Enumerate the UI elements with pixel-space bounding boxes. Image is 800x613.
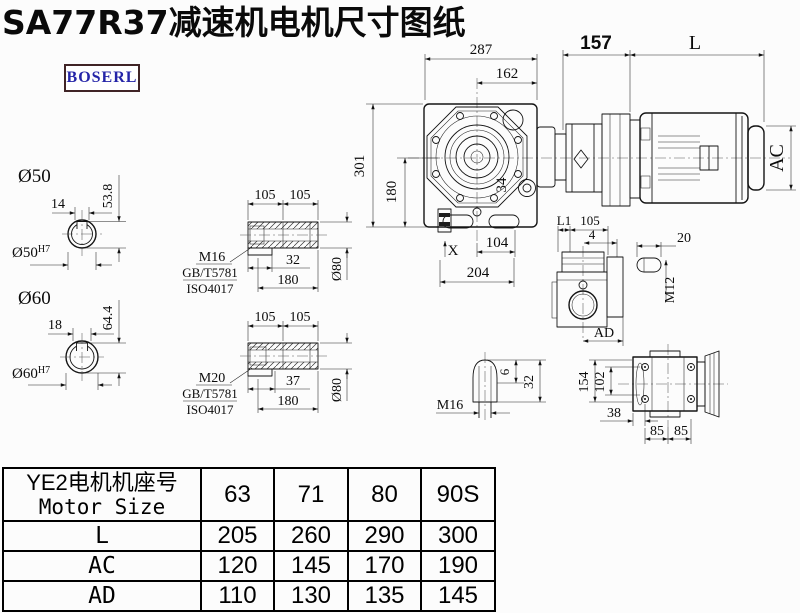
dim-AD-label: AD bbox=[594, 326, 614, 341]
dim-20-label: 20 bbox=[677, 231, 691, 246]
b2-dim-d80: Ø80 bbox=[330, 378, 345, 402]
AD-71: 130 bbox=[274, 581, 348, 611]
shaft50-title: Ø50 bbox=[18, 166, 51, 187]
dim-180-label: 180 bbox=[384, 181, 400, 204]
table-row-AC: AC 120 145 170 190 bbox=[3, 551, 495, 581]
shaft-section-50: Ø50 14 53.8 Ø50H7 bbox=[12, 166, 126, 270]
drawing-page: { "page": { "title": "SA77R37减速机电机尺寸图纸",… bbox=[0, 0, 800, 613]
table-row-header: YE2电机机座号 Motor Size 63 71 80 90S bbox=[3, 468, 495, 521]
technical-drawing: 287 162 157 L 301 180 34 X 104 204 bbox=[0, 0, 800, 465]
size-63: 63 bbox=[201, 468, 274, 521]
b1-dim-32: 32 bbox=[286, 253, 300, 268]
cone-thread-label: M16 bbox=[437, 398, 463, 413]
dim-301-label: 301 bbox=[352, 155, 368, 178]
AC-63: 120 bbox=[201, 551, 274, 581]
dim-102-label: 102 bbox=[593, 372, 608, 393]
b2-std1-label: GB/T5781 bbox=[182, 386, 238, 401]
b1-dim-105a: 105 bbox=[255, 188, 276, 203]
dim-104-label: 104 bbox=[486, 235, 509, 251]
AD-63: 110 bbox=[201, 581, 274, 611]
header-en: Motor Size bbox=[4, 495, 200, 519]
L-71: 260 bbox=[274, 521, 348, 551]
size-71: 71 bbox=[274, 468, 348, 521]
side-view: L1 105 4 AD bbox=[552, 213, 623, 346]
L-63: 205 bbox=[201, 521, 274, 551]
b1-thread-label: M16 bbox=[199, 250, 225, 265]
front-view: 287 162 157 L 301 180 34 X 104 204 bbox=[352, 32, 796, 287]
b1-dim-180: 180 bbox=[278, 273, 299, 288]
dim-X-label: X bbox=[448, 243, 459, 259]
dim-38-label: 38 bbox=[607, 406, 621, 421]
dim-18-label: 18 bbox=[48, 318, 62, 333]
dim-204-label: 204 bbox=[467, 265, 490, 281]
b2-thread-label: M20 bbox=[199, 371, 225, 386]
dim-L1-label: L1 bbox=[557, 213, 571, 228]
side-dim-105: 105 bbox=[580, 213, 600, 228]
b2-dim-105a: 105 bbox=[255, 310, 276, 325]
rear-view: 154 102 38 85 85 bbox=[577, 344, 728, 444]
b2-dim-37: 37 bbox=[286, 374, 300, 389]
AD-80: 135 bbox=[348, 581, 421, 611]
header-cell-motor-size: YE2电机机座号 Motor Size bbox=[3, 468, 201, 521]
row-label-AD: AD bbox=[3, 581, 201, 611]
table-row-L: L 205 260 290 300 bbox=[3, 521, 495, 551]
dim-64_4-label: 64.4 bbox=[101, 306, 116, 331]
dim-AC-label: AC bbox=[766, 144, 788, 172]
cone-dim-32: 32 bbox=[522, 375, 537, 389]
spec-table: YE2电机机座号 Motor Size 63 71 80 90S L 205 2… bbox=[2, 467, 496, 612]
dim-287-label: 287 bbox=[470, 42, 493, 58]
AC-80: 170 bbox=[348, 551, 421, 581]
cone-detail: M16 6 32 bbox=[436, 352, 546, 420]
dim-157-label: 157 bbox=[580, 33, 612, 54]
key-detail: 20 M12 bbox=[637, 231, 691, 303]
size-80: 80 bbox=[348, 468, 421, 521]
bushing-detail-2: 105 105 M20 GB/T5781 ISO4017 37 180 Ø80 bbox=[182, 310, 352, 417]
dim-53_8-label: 53.8 bbox=[101, 184, 116, 209]
dim-6-label: 6 bbox=[497, 368, 512, 375]
b1-dim-d80: Ø80 bbox=[330, 257, 345, 281]
side-dim-4: 4 bbox=[589, 227, 596, 242]
dim-M12-label: M12 bbox=[663, 277, 678, 303]
size-90S: 90S bbox=[421, 468, 495, 521]
AD-90S: 145 bbox=[421, 581, 495, 611]
dim-154-label: 154 bbox=[577, 372, 592, 393]
AC-90S: 190 bbox=[421, 551, 495, 581]
b1-std2-label: ISO4017 bbox=[187, 281, 234, 296]
L-90S: 300 bbox=[421, 521, 495, 551]
AC-71: 145 bbox=[274, 551, 348, 581]
row-label-AC: AC bbox=[3, 551, 201, 581]
L-80: 290 bbox=[348, 521, 421, 551]
row-label-L: L bbox=[3, 521, 201, 551]
b1-dim-105b: 105 bbox=[290, 188, 311, 203]
b2-dim-180: 180 bbox=[278, 394, 299, 409]
bore60-label: Ø60H7 bbox=[12, 365, 50, 382]
dim-14-label: 14 bbox=[51, 197, 65, 212]
dim-162-label: 162 bbox=[496, 66, 519, 82]
b2-dim-105b: 105 bbox=[290, 310, 311, 325]
b1-std1-label: GB/T5781 bbox=[182, 265, 238, 280]
dim-L-label: L bbox=[689, 32, 701, 54]
shaft-section-60: Ø60 18 64.4 Ø60H7 bbox=[12, 288, 126, 390]
dim-85b-label: 85 bbox=[674, 424, 688, 439]
shaft60-title: Ø60 bbox=[18, 288, 51, 309]
b2-std2-label: ISO4017 bbox=[187, 402, 234, 417]
dim-34-label: 34 bbox=[494, 177, 510, 193]
dim-85a-label: 85 bbox=[650, 424, 664, 439]
bushing-detail-1: 105 105 M16 GB/T5781 ISO4017 32 180 Ø80 bbox=[182, 188, 352, 296]
header-cn: YE2电机机座号 bbox=[4, 471, 200, 495]
table-row-AD: AD 110 130 135 145 bbox=[3, 581, 495, 611]
bore50-label: Ø50H7 bbox=[12, 244, 50, 261]
